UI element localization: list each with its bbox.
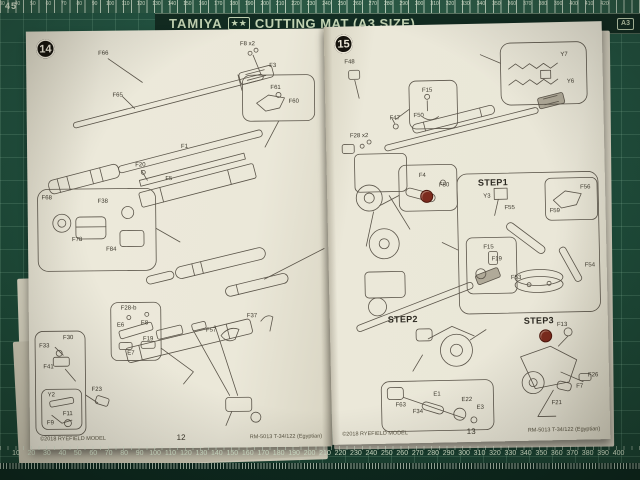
ruler-number: 190: [288, 450, 300, 457]
millimeter-ticks: [0, 463, 640, 469]
ruler-number: 380: [539, 1, 547, 7]
part-label: E1: [433, 392, 440, 399]
part-label: F34: [413, 409, 423, 416]
part-label: F4: [419, 173, 426, 180]
ruler-number: 290: [400, 1, 408, 7]
ruler-number: 350: [535, 450, 547, 457]
part-label: F78: [72, 237, 82, 244]
part-label: Y6: [567, 79, 574, 86]
ruler-number: 270: [369, 1, 377, 7]
part-label: F48: [344, 59, 354, 66]
inset-box-tracks: [500, 41, 587, 105]
part-label: Y2: [48, 392, 55, 399]
ruler-number: 110: [122, 1, 130, 7]
ruler-number: 370: [566, 450, 578, 457]
ruler-number: 60: [89, 450, 97, 457]
part-label: F59: [550, 208, 560, 215]
ruler-number: 120: [180, 450, 192, 457]
muzzle-brake-top: [537, 92, 565, 109]
ruler-number: 170: [214, 1, 222, 7]
ruler-number: 180: [273, 450, 285, 457]
ruler-number: 130: [196, 450, 208, 457]
ruler-number: 210: [276, 1, 284, 7]
part-label: F13: [557, 322, 567, 329]
ruler-number: 40: [58, 450, 66, 457]
ruler-number: 30: [43, 450, 51, 457]
part-label: F15: [483, 244, 493, 251]
part-label: F60: [289, 99, 299, 106]
part-label: F47: [390, 115, 400, 122]
ruler-number: 300: [415, 1, 423, 7]
ruler-number: 360: [508, 1, 516, 7]
ruler-number: 370: [523, 1, 531, 7]
ruler-number: 210: [319, 450, 331, 457]
recoil-cylinders: [145, 246, 266, 286]
ruler-number: 420: [600, 1, 608, 7]
ruler-number: 160: [242, 450, 254, 457]
mat-top-ruler: 3040506070809010011012013014015016017018…: [0, 0, 640, 13]
part-label: F41: [43, 364, 53, 371]
bottom-assembly: [226, 397, 261, 425]
part-f13: [564, 328, 572, 336]
ruler-number: 200: [260, 1, 268, 7]
part-label: F50: [413, 113, 423, 120]
ruler-number: 50: [74, 450, 82, 457]
ruler-number: 100: [149, 450, 161, 457]
part-label: F54: [585, 262, 595, 269]
inset-box-f15: [409, 80, 458, 129]
part-f37: [261, 316, 273, 331]
part-label: E7: [127, 350, 134, 357]
part-label: E3: [477, 405, 484, 412]
ruler-number: 80: [120, 450, 128, 457]
part-label: F63: [396, 402, 406, 409]
mat-bottom-ruler: 1020304050607080901001101201301401501601…: [0, 446, 640, 463]
ruler-number: 250: [381, 450, 393, 457]
part-label: F65: [112, 93, 122, 100]
part-label: F57: [206, 328, 216, 335]
part-label: F9: [47, 420, 54, 427]
part-label: Y7: [560, 52, 567, 59]
ruler-number: 230: [307, 1, 315, 7]
part-label: F1: [181, 144, 188, 151]
ruler-number: 130: [152, 1, 160, 7]
ruler-number: 50: [30, 1, 36, 7]
part-label: F61: [270, 85, 280, 92]
manual-page-12: 14 F66F65F8 x2F3F61F60F20F1F5F68F38F78F8…: [26, 28, 332, 449]
ruler-number: 170: [257, 450, 269, 457]
part-label: F28 x2: [350, 133, 368, 140]
ruler-number: 70: [61, 1, 67, 7]
part-label: F38: [98, 199, 108, 206]
kit-number-text: RM-5013 T-34/122 (Egyptian): [528, 426, 600, 434]
part-label: F15: [422, 88, 432, 95]
ruler-number: 230: [350, 450, 362, 457]
ruler-number: 140: [211, 450, 223, 457]
mat-bottom-edge-band: [0, 463, 640, 480]
instruction-booklet: 14 F66F65F8 x2F3F61F60F20F1F5F68F38F78F8…: [26, 24, 608, 454]
part-label: F19: [143, 336, 153, 343]
sub-step-label: STEP2: [388, 314, 418, 325]
part-label: F28-b: [121, 305, 137, 312]
ruler-number: 310: [430, 1, 438, 7]
copyright-text: ©2018 RYEFIELD MODEL: [40, 436, 106, 443]
ruler-number: 390: [597, 450, 609, 457]
ruler-number: 160: [199, 1, 207, 7]
ruler-number: 90: [136, 450, 144, 457]
ruler-number: 340: [520, 450, 532, 457]
part-label: F3: [269, 63, 276, 70]
ruler-number: 300: [458, 450, 470, 457]
sub-step-label: STEP1: [478, 177, 508, 188]
ruler-number: 400: [569, 1, 577, 7]
ruler-number: 260: [353, 1, 361, 7]
part-label: F84: [106, 247, 116, 254]
cradle: [136, 152, 257, 208]
ruler-number: 140: [168, 1, 176, 7]
page-number: 13: [467, 427, 476, 436]
ruler-number: 70: [105, 450, 113, 457]
page-number: 12: [177, 433, 186, 442]
ruler-number: 180: [230, 1, 238, 7]
part-label: F50: [439, 182, 449, 189]
part-label: F23: [92, 387, 102, 394]
ruler-number: 110: [165, 450, 176, 457]
part-label: F55: [504, 205, 514, 212]
part-label: F7: [576, 384, 583, 391]
part-label: F21: [552, 400, 562, 407]
mat-corner-number: 45: [5, 1, 17, 11]
ruler-number: 100: [106, 1, 114, 7]
part-label: F66: [98, 51, 108, 58]
photo-of-instruction-booklet-on-cutting-mat: 3040506070809010011012013014015016017018…: [0, 0, 640, 480]
ruler-number: 240: [322, 1, 330, 7]
ruler-number: 330: [505, 450, 517, 457]
part-label: E22: [461, 397, 472, 404]
part-label: F5: [165, 176, 172, 183]
ruler-number: 320: [446, 1, 454, 7]
step1-box: [457, 171, 601, 314]
ruler-number: 190: [245, 1, 253, 7]
ruler-number: 250: [338, 1, 346, 7]
part-label: E8: [141, 320, 148, 327]
ruler-number: 290: [443, 450, 455, 457]
ruler-number: 20: [28, 450, 36, 457]
ruler-number: 120: [137, 1, 145, 7]
kit-number-text: RM-5013 T-34/122 (Egyptian): [250, 434, 322, 441]
part-f48: [349, 70, 360, 79]
ruler-number: 270: [412, 450, 424, 457]
manual-page-13: 15 STEP1STEP2STEP3 F48F47F15F50Y7Y6F28 x…: [324, 21, 611, 445]
step2-assembly: [412, 326, 487, 372]
part-label: F19: [491, 256, 501, 263]
part-label: F37: [247, 313, 257, 320]
ruler-number: 390: [554, 1, 562, 7]
ruler-number: 330: [461, 1, 469, 7]
ruler-number: 360: [551, 450, 563, 457]
part-label: F33: [39, 343, 49, 350]
part-label: F8 x2: [240, 41, 255, 48]
part-label: F56: [580, 184, 590, 191]
ruler-number: 380: [582, 450, 594, 457]
ruler-number: 400: [613, 450, 625, 457]
part-label: F20: [135, 162, 145, 169]
ruler-number: 220: [335, 450, 347, 457]
a3-size-badge: A3: [617, 18, 634, 30]
ruler-number: 320: [489, 450, 501, 457]
step-number-badge: 14: [36, 39, 55, 58]
ruler-number: 280: [427, 450, 439, 457]
ruler-number: 410: [585, 1, 593, 7]
ruler-number: 60: [46, 1, 52, 7]
ruler-number: 200: [304, 450, 316, 457]
part-label: Y3: [483, 193, 490, 200]
breech-assembly: [342, 139, 410, 259]
ruler-number: 150: [183, 1, 191, 7]
ruler-number: 220: [291, 1, 299, 7]
part-label: F68: [42, 195, 52, 202]
ruler-number: 240: [366, 450, 378, 457]
ruler-number: 90: [92, 1, 98, 7]
barrel-tube: [72, 69, 266, 134]
part-label: E6: [117, 323, 124, 330]
ruler-number: 80: [76, 1, 82, 7]
sub-step-label: STEP3: [524, 315, 554, 326]
ruler-number: 10: [12, 450, 20, 457]
muzzle-brake-mid: [475, 267, 501, 285]
ruler-number: 260: [396, 450, 408, 457]
part-label: F30: [63, 335, 73, 342]
ruler-number: 280: [384, 1, 392, 7]
part-label: F11: [63, 411, 73, 418]
part-label: F53: [511, 275, 521, 282]
part-label: F26: [588, 372, 598, 379]
ruler-number: 350: [492, 1, 500, 7]
ruler-number: 150: [226, 450, 238, 457]
copyright-text: ©2018 RYEFIELD MODEL: [342, 430, 408, 437]
ruler-number: 340: [477, 1, 485, 7]
ruler-number: 310: [474, 450, 486, 457]
